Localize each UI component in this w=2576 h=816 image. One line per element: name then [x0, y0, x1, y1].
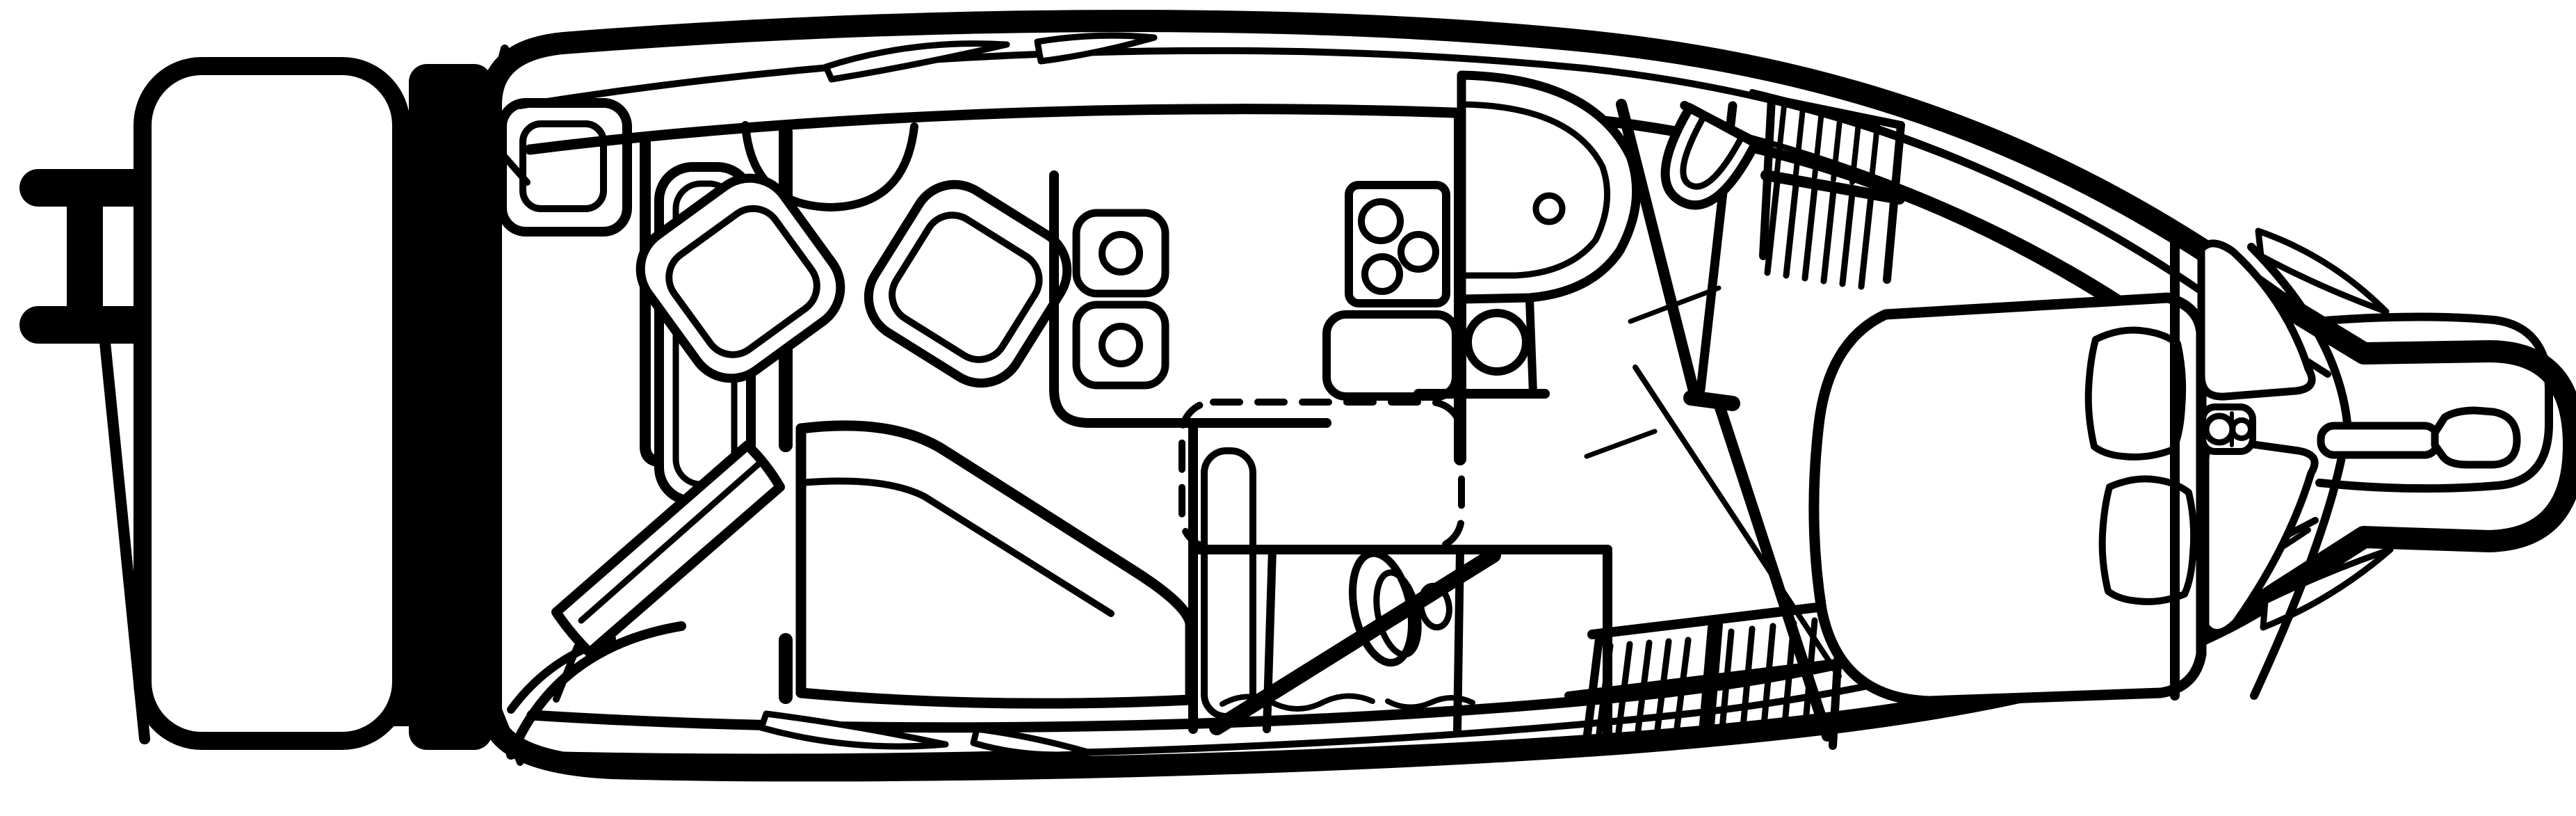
bow-cleat-fitting	[2203, 407, 2253, 451]
ladder-rail-short	[67, 188, 103, 341]
galley-refrigerator	[1327, 314, 1456, 397]
vanity-wall	[1530, 299, 1533, 394]
transom-band	[409, 64, 492, 750]
boat-floorplan-canvas	[0, 0, 2576, 816]
galley-stove	[1349, 185, 1446, 303]
swim-platform	[143, 66, 401, 741]
floorplan-svg	[0, 0, 2576, 816]
head-wall-junction	[1691, 398, 1733, 403]
